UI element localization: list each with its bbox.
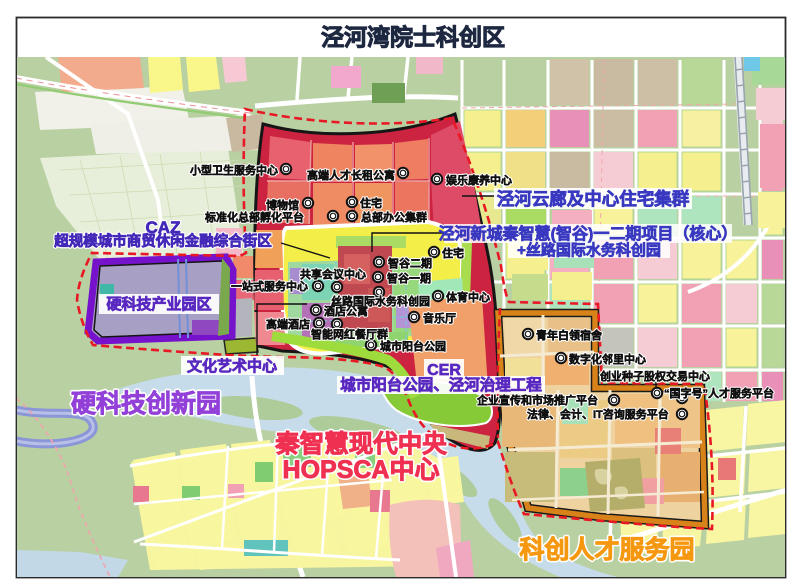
svg-text:一站式服务中心: 一站式服务中心 [231,279,308,293]
svg-text:博物馆: 博物馆 [266,198,299,212]
svg-text:+丝路国际水务科创园: +丝路国际水务科创园 [517,241,661,259]
svg-text:共享会议中心: 共享会议中心 [300,267,366,281]
svg-text:高端人才长租公寓: 高端人才长租公寓 [307,168,395,182]
svg-text:泾河云廊及中心住宅集群: 泾河云廊及中心住宅集群 [497,189,690,209]
svg-text:创业种子股权交易中心: 创业种子股权交易中心 [599,369,710,383]
svg-text:音乐厅: 音乐厅 [423,311,456,325]
svg-text:科创人才服务园: 科创人才服务园 [519,536,694,564]
svg-text:硬科技产业园区: 硬科技产业园区 [106,295,211,313]
svg-text:总部办公集群: 总部办公集群 [361,210,427,224]
svg-text:智谷一期: 智谷一期 [387,271,431,285]
svg-text:秦智慧现代中央: 秦智慧现代中央 [274,429,447,458]
svg-text:城市阳台公园、泾河治理工程: 城市阳台公园、泾河治理工程 [340,375,542,394]
svg-text:HOPSCA中心: HOPSCA中心 [283,456,440,484]
svg-text:高端酒店: 高端酒店 [266,317,310,331]
svg-text:体育中心: 体育中心 [446,290,490,304]
svg-text:泾河新城秦智慧(智谷)一二期项目（核心）: 泾河新城秦智慧(智谷)一二期项目（核心） [439,224,738,243]
svg-text:智谷二期: 智谷二期 [388,256,432,270]
svg-text:硬科技创新园: 硬科技创新园 [71,389,221,418]
svg-text:泾河湾院士科创区: 泾河湾院士科创区 [321,24,505,50]
svg-text:青年白领宿舍: 青年白领宿舍 [536,328,603,342]
svg-text:超规模城市商贸休闲金融综合街区: 超规模城市商贸休闲金融综合街区 [53,232,272,250]
svg-text:企业宣传和市场推广平台: 企业宣传和市场推广平台 [476,393,598,407]
svg-text:住宅: 住宅 [360,196,382,210]
svg-text:法律、会计、IT咨询服务平台: 法律、会计、IT咨询服务平台 [527,407,669,421]
svg-text:数字化邻里中心: 数字化邻里中心 [569,352,646,366]
svg-text:智能网红餐厅群: 智能网红餐厅群 [311,327,388,341]
svg-text:“国字号”人才服务平台: “国字号”人才服务平台 [664,386,774,400]
svg-text:文化艺术中心: 文化艺术中心 [187,357,277,375]
svg-text:娱乐康养中心: 娱乐康养中心 [446,173,512,187]
svg-text:酒店公寓: 酒店公寓 [324,304,368,318]
svg-text:住宅: 住宅 [442,246,464,260]
svg-text:标准化总部孵化平台: 标准化总部孵化平台 [204,210,304,224]
svg-text:小型卫生服务中心: 小型卫生服务中心 [189,163,278,177]
svg-text:城市阳台公园: 城市阳台公园 [380,339,446,353]
